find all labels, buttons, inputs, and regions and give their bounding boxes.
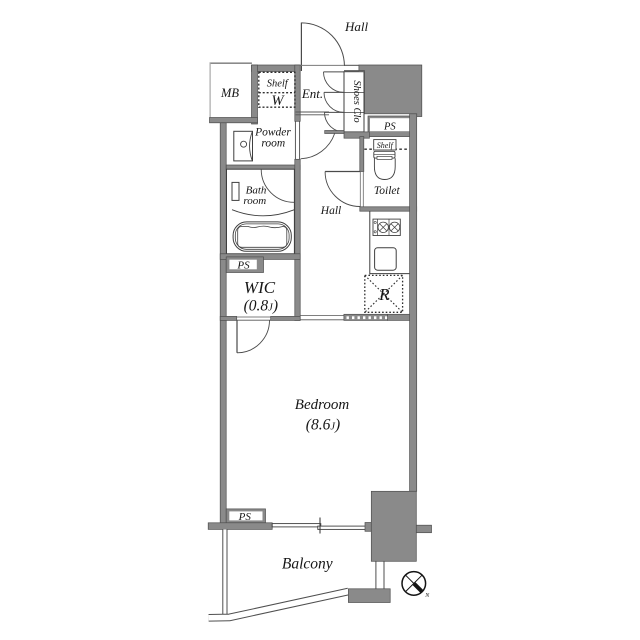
svg-text:room: room bbox=[261, 137, 285, 149]
svg-text:Toilet: Toilet bbox=[374, 185, 401, 197]
svg-text:R: R bbox=[378, 285, 390, 304]
svg-text:Balcony: Balcony bbox=[282, 555, 333, 572]
svg-text:(0.8J): (0.8J) bbox=[244, 298, 278, 315]
svg-text:Bedroom: Bedroom bbox=[295, 397, 350, 413]
svg-text:Hall: Hall bbox=[320, 205, 341, 217]
svg-text:PS: PS bbox=[238, 511, 252, 523]
svg-text:PS: PS bbox=[236, 259, 250, 271]
svg-text:Ent.: Ent. bbox=[301, 86, 323, 101]
svg-text:Shoes Clo: Shoes Clo bbox=[351, 80, 362, 122]
svg-text:Hall: Hall bbox=[344, 19, 369, 34]
svg-text:room: room bbox=[243, 195, 266, 207]
svg-text:MB: MB bbox=[220, 86, 239, 100]
svg-text:Shelf: Shelf bbox=[377, 141, 395, 150]
svg-text:(8.6J): (8.6J) bbox=[306, 416, 340, 433]
svg-text:Shelf: Shelf bbox=[267, 78, 290, 89]
svg-text:W: W bbox=[271, 93, 285, 109]
svg-text:WIC: WIC bbox=[244, 278, 276, 297]
svg-text:PS: PS bbox=[383, 121, 396, 132]
